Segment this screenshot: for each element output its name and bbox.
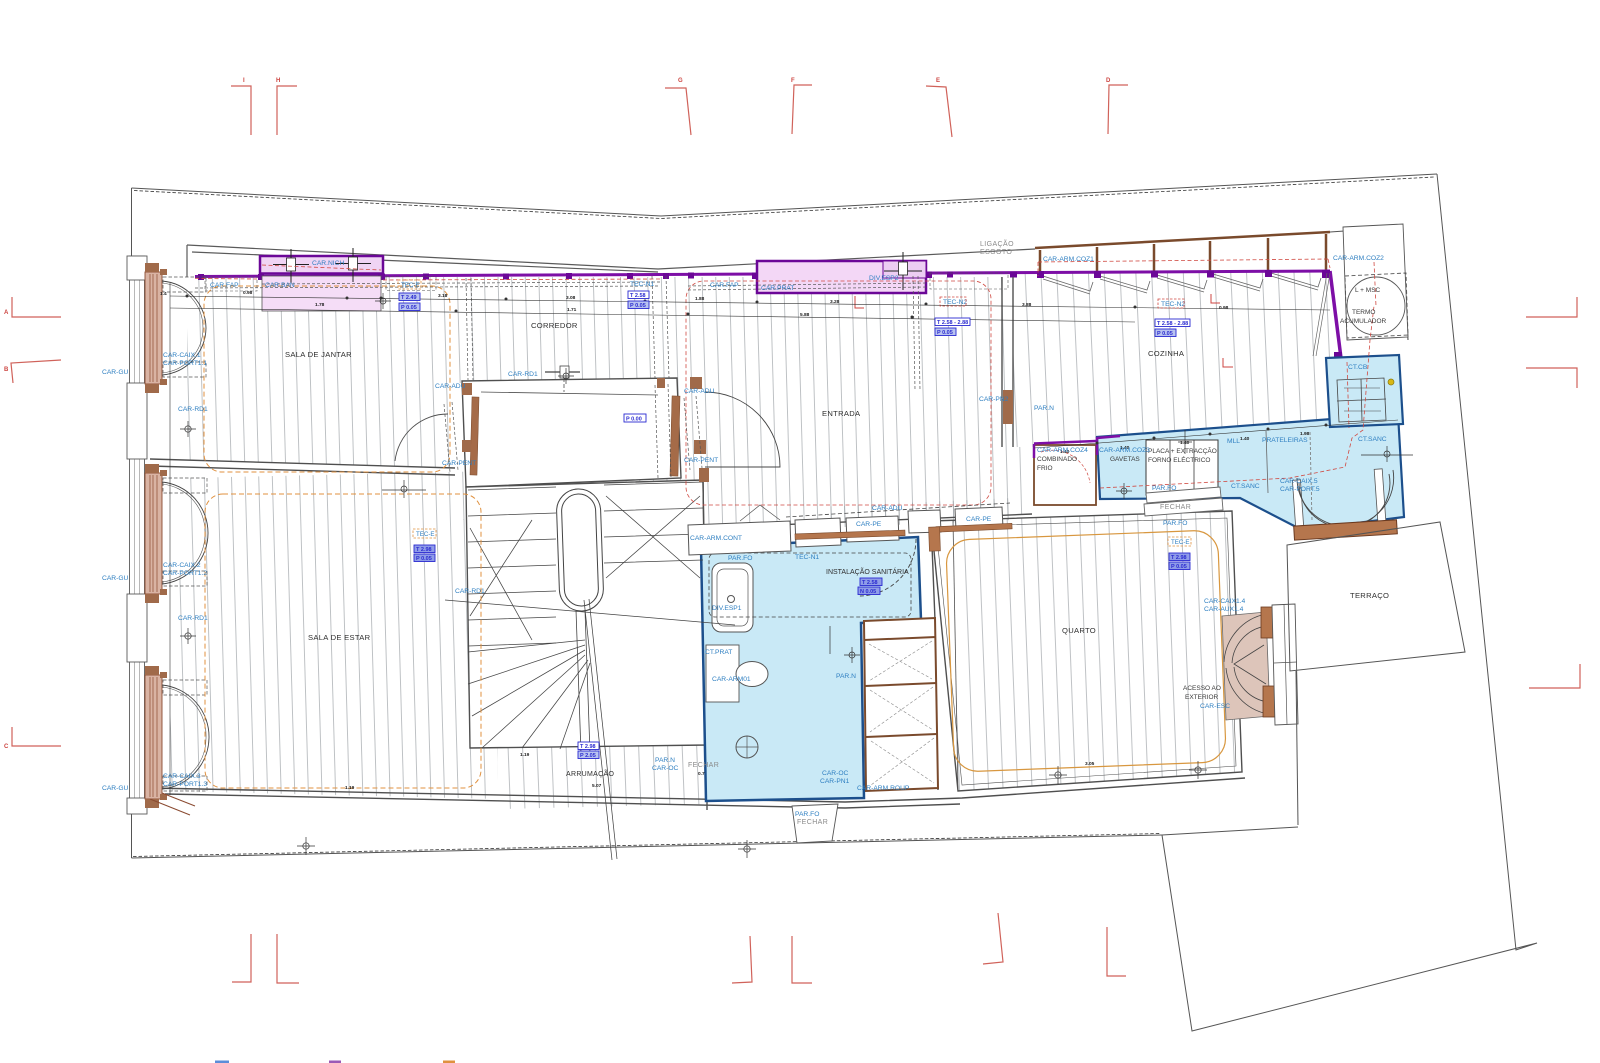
svg-text:1.19: 1.19 [345,785,355,791]
svg-text:3.88: 3.88 [1022,302,1032,308]
svg-text:CAR-PN1: CAR-PN1 [820,778,850,785]
svg-text:3.08: 3.08 [566,295,576,301]
svg-text:1.71: 1.71 [567,307,577,313]
svg-text:CAR-RD1: CAR-RD1 [455,588,485,595]
svg-text:CAR-PN2: CAR-PN2 [979,396,1009,403]
svg-text:CAR-CAIX1.4: CAR-CAIX1.4 [1204,598,1246,605]
svg-text:PAR.FO: PAR.FO [1163,520,1187,527]
svg-text:DIV.ESP1: DIV.ESP1 [712,605,742,612]
svg-text:CAR-CAIX.1: CAR-CAIX.1 [163,352,201,359]
svg-text:SALA DE ESTAR: SALA DE ESTAR [308,633,371,642]
svg-text:0.7: 0.7 [698,771,705,777]
svg-text:COMBINADO: COMBINADO [1037,456,1077,463]
svg-text:P 0.05: P 0.05 [937,330,953,336]
svg-text:CAR-PE: CAR-PE [966,516,992,523]
svg-text:P 0.05: P 0.05 [1157,331,1173,337]
svg-text:1.78: 1.78 [315,302,325,308]
svg-text:FECHAR: FECHAR [1160,504,1191,511]
svg-text:P 2.05: P 2.05 [580,753,596,759]
svg-text:CAR-PE: CAR-PE [856,521,882,528]
svg-text:H: H [276,78,280,84]
svg-text:G: G [678,78,683,84]
svg-text:CAR-CAIX.3: CAR-CAIX.3 [163,773,201,780]
svg-text:TERRAÇO: TERRAÇO [1350,591,1389,600]
svg-text:P 0.05: P 0.05 [630,303,646,309]
svg-text:CAR-GU: CAR-GU [102,785,129,792]
svg-text:PAR.N: PAR.N [1034,405,1054,412]
svg-text:PAR.N: PAR.N [836,673,856,680]
svg-text:TEC-E: TEC-E [416,531,435,538]
svg-text:CAR-OC: CAR-OC [652,765,679,772]
svg-text:T 2.58: T 2.58 [862,580,878,586]
svg-text:TEC-N2: TEC-N2 [1161,301,1185,308]
svg-text:INSTALAÇÃO SANITÁRIA: INSTALAÇÃO SANITÁRIA [826,567,909,576]
svg-text:CAR-ARM.COZ3: CAR-ARM.COZ3 [1099,447,1150,454]
svg-text:L + MSC: L + MSC [1355,287,1381,294]
svg-text:CAR-PORT.5: CAR-PORT.5 [1280,486,1320,493]
svg-text:F: F [791,78,795,84]
svg-text:QUARTO: QUARTO [1062,626,1096,635]
svg-text:ESGOTO: ESGOTO [980,249,1012,256]
svg-text:CAR-ADU: CAR-ADU [684,388,715,395]
svg-text:T 2.58 - 2.88: T 2.58 - 2.88 [937,320,968,326]
svg-text:ENTRADA: ENTRADA [822,409,861,418]
svg-text:PAR.FO: PAR.FO [1152,485,1176,492]
svg-text:CAR.PRAT: CAR.PRAT [761,285,794,292]
svg-text:CAR-ADU: CAR-ADU [872,505,903,512]
svg-text:5.88: 5.88 [800,312,810,318]
svg-text:D: D [1106,78,1111,84]
svg-text:CAR-AUX1.4: CAR-AUX1.4 [1204,606,1244,613]
svg-text:P 0.00: P 0.00 [626,417,642,423]
svg-text:ACESSO AO: ACESSO AO [1183,685,1221,692]
svg-text:1.19: 1.19 [520,752,530,758]
svg-text:MLL: MLL [1227,438,1240,445]
svg-text:P 0.05: P 0.05 [1171,564,1187,570]
svg-text:GAVETAS: GAVETAS [1110,456,1140,463]
svg-text:T 2.58 - 2.88: T 2.58 - 2.88 [1157,321,1188,327]
svg-text:CAR-ARM.CONT: CAR-ARM.CONT [690,535,742,542]
svg-text:PRATELEIRAS: PRATELEIRAS [1262,437,1308,444]
svg-text:T 2.58: T 2.58 [630,293,646,299]
svg-text:3.28: 3.28 [830,299,840,305]
svg-text:TEC-E: TEC-E [1171,539,1190,546]
svg-text:CAR.FAP: CAR.FAP [710,282,739,289]
svg-text:TERMO: TERMO [1352,309,1375,316]
svg-text:CAR-ARM.COZ4: CAR-ARM.COZ4 [1037,447,1088,454]
svg-text:1.40: 1.40 [1240,436,1250,442]
svg-text:CAR-RD1: CAR-RD1 [178,615,208,622]
svg-text:DIV.ESP2: DIV.ESP2 [869,275,899,282]
svg-text:1.88: 1.88 [695,296,705,302]
svg-text:CAR-ARM01: CAR-ARM01 [712,676,751,683]
svg-text:FECHAR: FECHAR [688,762,719,769]
svg-text:CAR-ESC: CAR-ESC [1200,703,1230,710]
svg-text:PAR.FO: PAR.FO [728,555,752,562]
svg-text:TEC-N1: TEC-N1 [795,554,819,561]
svg-text:EXTERIOR: EXTERIOR [1185,694,1219,701]
svg-text:CT.PRAT: CT.PRAT [705,649,732,656]
svg-text:CAR-CAIX.2: CAR-CAIX.2 [163,562,201,569]
svg-text:CT.SANC: CT.SANC [1231,483,1260,490]
svg-text:LIGAÇÃO: LIGAÇÃO [980,239,1014,248]
svg-text:CAR-GU: CAR-GU [102,575,129,582]
svg-text:N 0.05: N 0.05 [860,589,876,595]
svg-text:T 2.98: T 2.98 [416,547,432,553]
svg-text:CAR-PORT1.3: CAR-PORT1.3 [163,781,207,788]
svg-text:PAR.N: PAR.N [655,757,675,764]
svg-text:T 2.98: T 2.98 [580,744,596,750]
svg-text:ARRUMAÇÃO: ARRUMAÇÃO [566,769,614,778]
svg-text:CAR-OC: CAR-OC [822,770,849,777]
svg-text:CAR-RD1: CAR-RD1 [508,371,538,378]
svg-text:T 2.49: T 2.49 [401,295,417,301]
svg-text:ACUMULADOR: ACUMULADOR [1340,318,1387,325]
svg-text:3.18: 3.18 [438,293,448,299]
svg-text:CAR-ARM.ROUP: CAR-ARM.ROUP [857,785,910,792]
svg-text:CAR.BAN: CAR.BAN [265,282,295,289]
svg-text:CT.SANC: CT.SANC [1358,436,1387,443]
svg-text:CAR.NICH: CAR.NICH [312,260,344,267]
svg-text:TEC-N2: TEC-N2 [943,299,967,306]
svg-text:CAR-ARM.COZ1: CAR-ARM.COZ1 [1043,256,1094,263]
svg-text:1.4: 1.4 [160,291,167,297]
svg-text:PAR.FO: PAR.FO [795,811,819,818]
svg-text:CT.CB: CT.CB [1348,364,1368,371]
svg-text:FECHAR: FECHAR [797,819,828,826]
svg-text:0.98: 0.98 [243,290,253,296]
svg-text:PLACA + EXTRACÇÃO: PLACA + EXTRACÇÃO [1148,446,1217,455]
svg-text:E: E [936,78,940,84]
svg-text:3.05: 3.05 [1085,761,1095,767]
svg-text:CAR-ARM.COZ2: CAR-ARM.COZ2 [1333,255,1384,262]
svg-text:I: I [243,78,245,84]
svg-text:CAR-CAIX.5: CAR-CAIX.5 [1280,478,1318,485]
svg-text:CAR.FAP: CAR.FAP [210,282,239,289]
svg-text:CORREDOR: CORREDOR [531,321,578,330]
svg-text:TEC-E: TEC-E [401,282,420,289]
svg-text:5.07: 5.07 [592,783,602,789]
svg-text:P 0.05: P 0.05 [401,305,417,311]
svg-text:FRIO: FRIO [1037,465,1053,472]
svg-text:CAR-PORT1.2: CAR-PORT1.2 [163,570,207,577]
svg-text:B: B [4,367,9,373]
svg-text:CAR-RD1: CAR-RD1 [178,406,208,413]
svg-text:CAR-PORT1.1: CAR-PORT1.1 [163,360,207,367]
svg-text:0.98: 0.98 [1219,305,1229,311]
svg-text:A: A [4,310,9,316]
svg-text:T 2.98: T 2.98 [1171,555,1187,561]
svg-text:C: C [4,744,9,750]
svg-text:FORNO ELÉCTRICO: FORNO ELÉCTRICO [1148,455,1210,464]
svg-text:CAR-PENT: CAR-PENT [684,457,718,464]
svg-text:CAR-ADU: CAR-ADU [435,383,466,390]
svg-text:CAR-GU: CAR-GU [102,369,129,376]
svg-text:CAR-PENT: CAR-PENT [442,460,476,467]
svg-text:TEC-N1: TEC-N1 [630,281,654,288]
svg-text:COZINHA: COZINHA [1148,349,1185,358]
svg-text:SALA DE JANTAR: SALA DE JANTAR [285,350,352,359]
svg-text:P 0.05: P 0.05 [416,556,432,562]
